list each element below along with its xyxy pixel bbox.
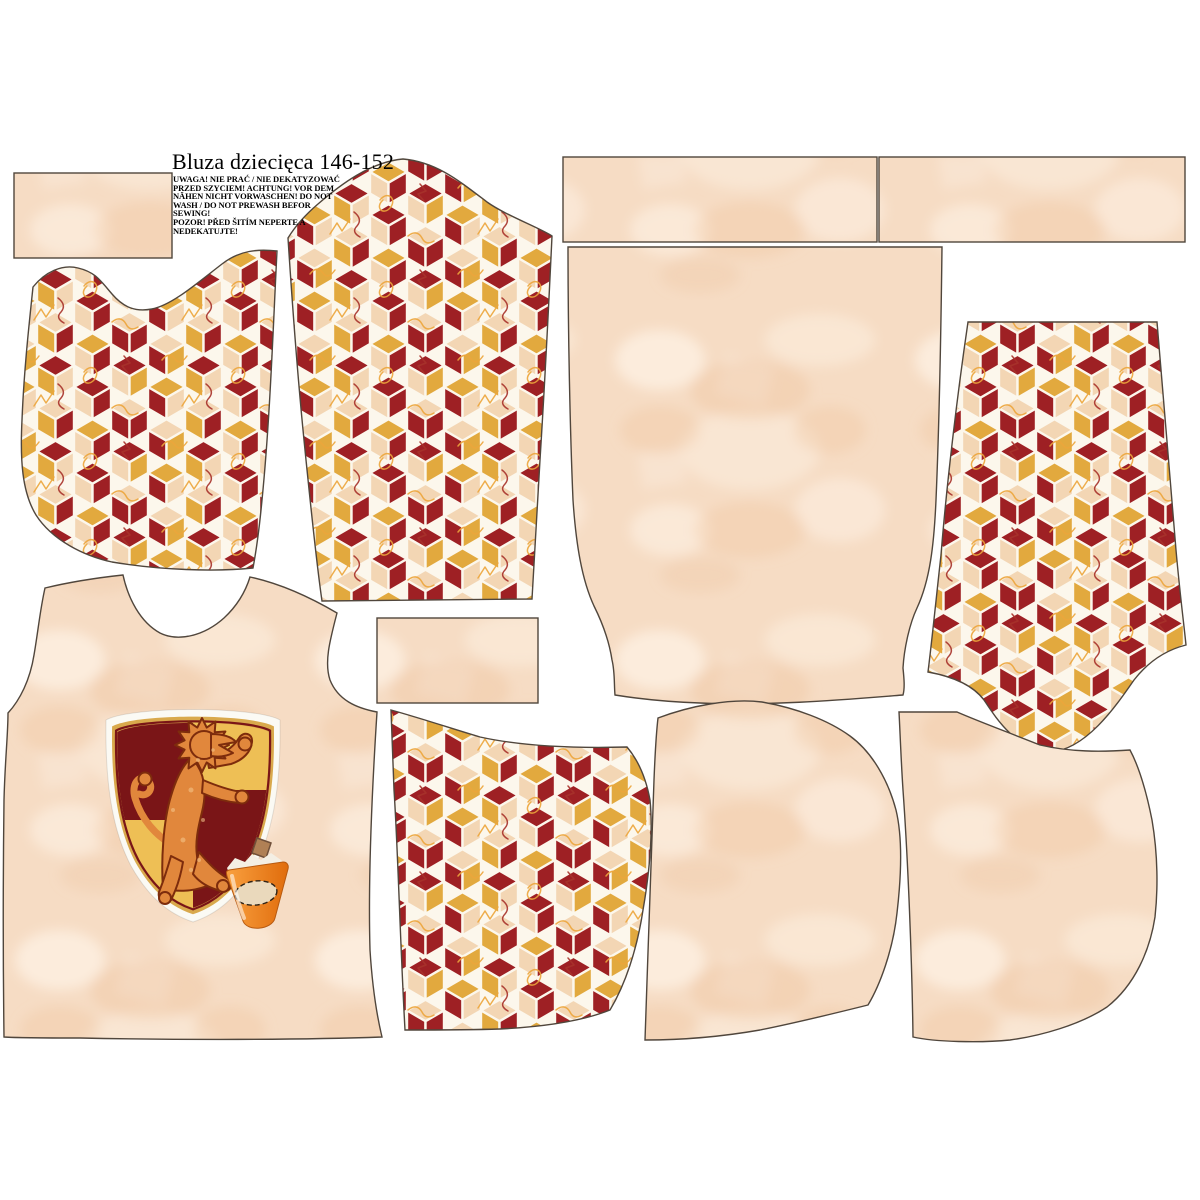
lion-tail-tuft: [139, 773, 152, 786]
lion-fore-paw-extended: [236, 791, 249, 804]
piece-rect-middle: [377, 618, 538, 703]
piece-hood-right: [899, 712, 1157, 1042]
piece-back-body: [568, 247, 942, 704]
care-warning-text: UWAGA! NIE PRAĆ / NIE DEKATYZOWAĆ PRZED …: [173, 175, 349, 235]
piece-hood-cube: [391, 710, 651, 1030]
piece-rect-top-right: [879, 157, 1185, 242]
page-title: Bluza dziecięca 146-152: [172, 150, 402, 174]
piece-rect-top-middle: [563, 157, 877, 242]
piece-sleeve-cube-right: [928, 322, 1186, 752]
lion-hind-paw-right: [217, 880, 229, 892]
lion-hind-paw-left: [159, 892, 171, 904]
pattern-sheet: Bluza dziecięca 146-152 UWAGA! NIE PRAĆ …: [0, 0, 1200, 1200]
piece-body-half-cube: [21, 250, 277, 570]
label-block: Bluza dziecięca 146-152 UWAGA! NIE PRAĆ …: [172, 150, 402, 235]
piece-hood-middle: [645, 701, 901, 1040]
piece-rect-left: [14, 173, 172, 258]
lion-fore-paw-raised: [239, 738, 252, 751]
